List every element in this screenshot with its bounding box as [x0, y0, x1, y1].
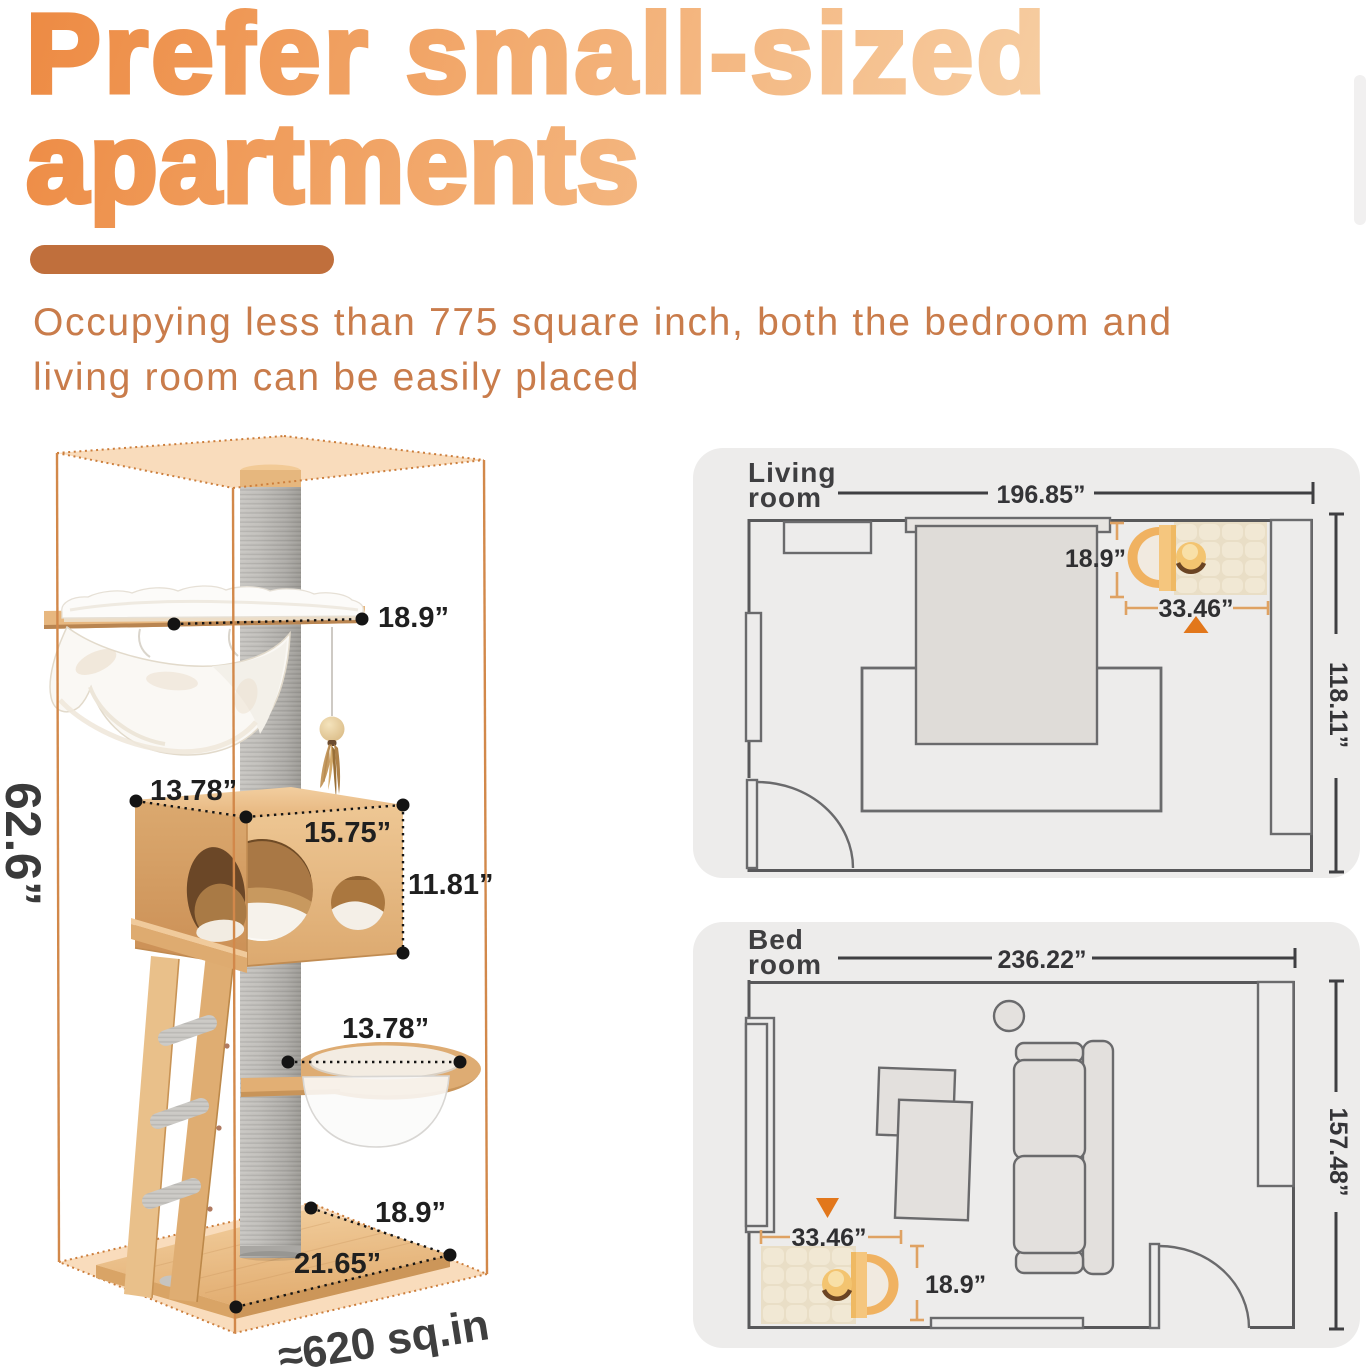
svg-text:11.81”: 11.81” — [408, 869, 493, 901]
svg-text:18.9”: 18.9” — [378, 602, 449, 634]
svg-text:Prefer small-sized: Prefer small-sized — [26, 0, 1044, 116]
svg-text:room: room — [748, 949, 822, 980]
svg-text:13.78”: 13.78” — [342, 1013, 429, 1045]
svg-text:21.65”: 21.65” — [294, 1248, 381, 1280]
svg-text:18.9”: 18.9” — [1065, 545, 1126, 573]
svg-text:33.46”: 33.46” — [791, 1224, 866, 1252]
svg-text:196.85”: 196.85” — [997, 481, 1086, 509]
svg-text:157.48”: 157.48” — [1324, 1108, 1352, 1197]
svg-text:apartments: apartments — [26, 101, 638, 226]
svg-text:18.9”: 18.9” — [375, 1197, 446, 1229]
svg-text:118.11”: 118.11” — [1324, 662, 1352, 748]
svg-text:62.6”: 62.6” — [0, 782, 51, 906]
svg-text:18.9”: 18.9” — [925, 1271, 986, 1299]
svg-text:13.78”: 13.78” — [150, 775, 237, 807]
svg-text:15.75”: 15.75” — [304, 817, 391, 849]
svg-text:room: room — [748, 482, 822, 513]
svg-text:236.22”: 236.22” — [998, 946, 1087, 974]
